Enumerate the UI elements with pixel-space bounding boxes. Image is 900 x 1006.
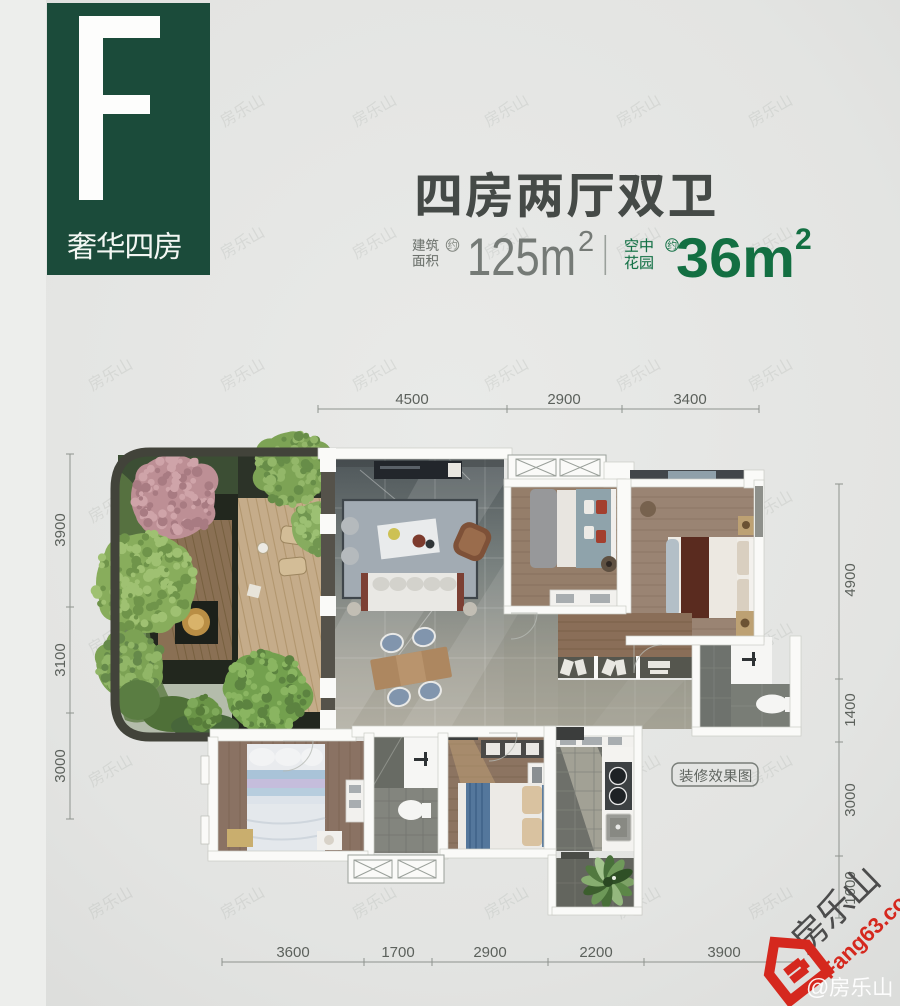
svg-text:3400: 3400 bbox=[673, 391, 706, 408]
svg-text:4900: 4900 bbox=[842, 563, 859, 596]
svg-text:3100: 3100 bbox=[52, 643, 69, 676]
svg-text:36m: 36m bbox=[676, 226, 795, 289]
svg-text:2900: 2900 bbox=[547, 391, 580, 408]
svg-text:125m: 125m bbox=[467, 228, 576, 287]
svg-text:3600: 3600 bbox=[276, 944, 309, 961]
svg-text:3900: 3900 bbox=[52, 513, 69, 546]
svg-text:3000: 3000 bbox=[842, 783, 859, 816]
svg-text:1400: 1400 bbox=[842, 693, 859, 726]
svg-text:2: 2 bbox=[795, 223, 812, 256]
svg-text:3000: 3000 bbox=[52, 749, 69, 782]
svg-text:3900: 3900 bbox=[707, 944, 740, 961]
svg-text:2900: 2900 bbox=[473, 944, 506, 961]
svg-text:2200: 2200 bbox=[579, 944, 612, 961]
svg-text:4500: 4500 bbox=[395, 391, 428, 408]
svg-text:@: @ bbox=[806, 974, 829, 1000]
svg-text:2: 2 bbox=[578, 226, 594, 258]
svg-text:1700: 1700 bbox=[381, 944, 414, 961]
